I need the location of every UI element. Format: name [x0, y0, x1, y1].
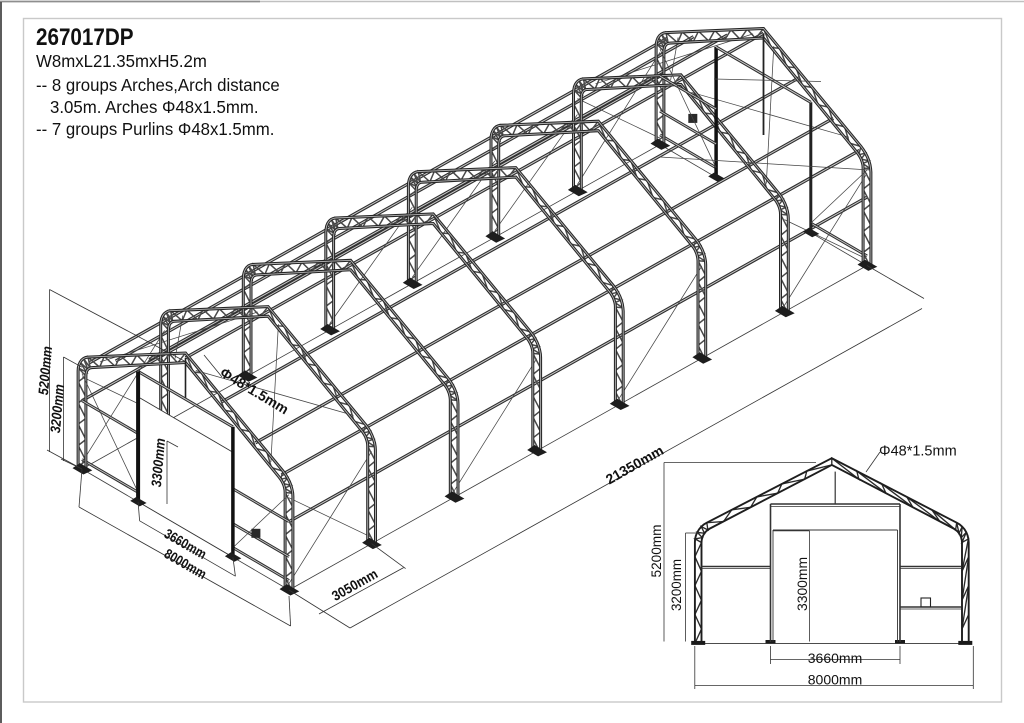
- svg-text:21350mm: 21350mm: [603, 442, 666, 487]
- svg-text:3200mm: 3200mm: [668, 559, 684, 611]
- svg-text:3660mm: 3660mm: [808, 650, 862, 666]
- svg-text:8000mm: 8000mm: [808, 672, 862, 688]
- svg-text:3200mm: 3200mm: [47, 383, 67, 433]
- svg-text:5200mm: 5200mm: [648, 525, 664, 578]
- svg-text:3300mm: 3300mm: [794, 557, 810, 611]
- svg-text:Φ48*1.5mm: Φ48*1.5mm: [879, 444, 957, 460]
